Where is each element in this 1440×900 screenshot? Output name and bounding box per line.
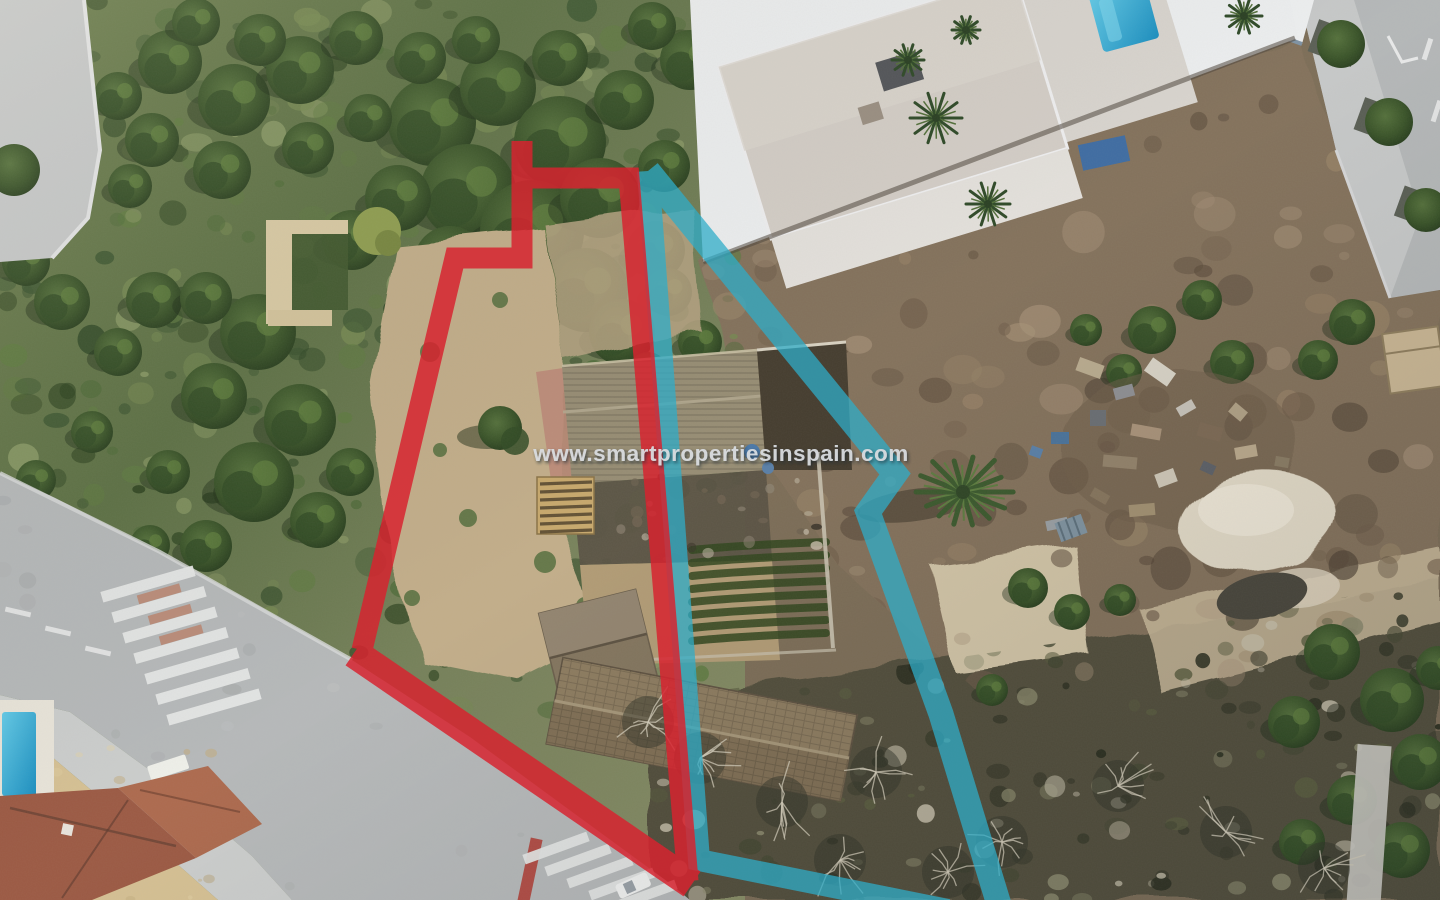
aerial-photo: www.smartpropertiesinspain.com [0, 0, 1440, 900]
aerial-photo-canvas: www.smartpropertiesinspain.com [0, 0, 1440, 900]
watermark-text: www.smartpropertiesinspain.com [532, 441, 909, 466]
